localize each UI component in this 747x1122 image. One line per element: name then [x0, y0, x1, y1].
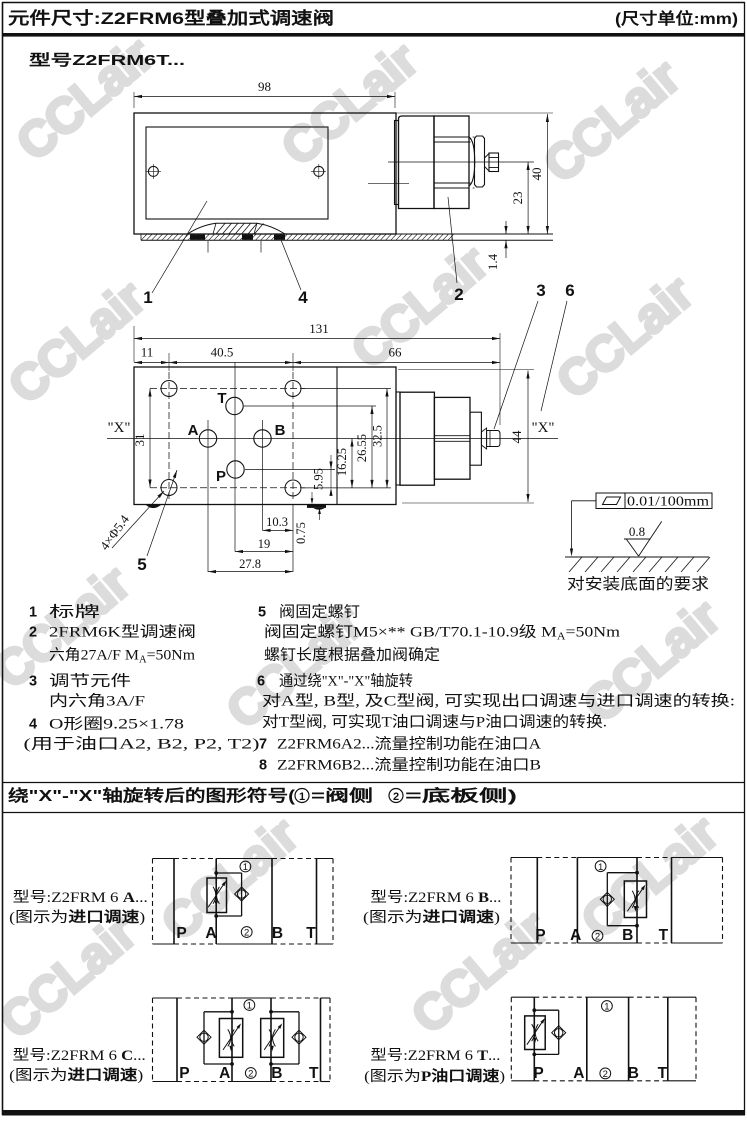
svg-text:A: A	[573, 1065, 584, 1082]
svg-text:131: 131	[309, 321, 329, 336]
svg-text:2FRM6K型调速阀: 2FRM6K型调速阀	[49, 624, 196, 641]
svg-text:7: 7	[259, 737, 267, 753]
svg-text:P: P	[533, 1065, 543, 1082]
svg-text:P: P	[216, 468, 226, 485]
svg-text:2: 2	[248, 1069, 253, 1080]
svg-text:2: 2	[244, 928, 249, 939]
svg-text:P: P	[535, 927, 545, 944]
svg-text:(用于油口A2, B2, P2, T2): (用于油口A2, B2, P2, T2)	[24, 736, 260, 753]
svg-text:98: 98	[258, 79, 271, 94]
svg-text:A: A	[570, 927, 581, 944]
svg-text:1: 1	[299, 791, 305, 803]
svg-text:40: 40	[529, 168, 544, 181]
svg-text:31: 31	[132, 434, 147, 447]
svg-text:B: B	[275, 422, 286, 439]
svg-text:40.5: 40.5	[211, 345, 234, 360]
svg-text:A: A	[188, 422, 199, 439]
svg-text:A: A	[205, 925, 216, 942]
svg-text:6: 6	[565, 281, 574, 300]
svg-text:阀固定螺钉: 阀固定螺钉	[279, 604, 360, 621]
svg-text:19: 19	[258, 537, 271, 551]
svg-text:4: 4	[29, 717, 37, 733]
svg-text:T: T	[658, 1065, 668, 1082]
svg-text:T: T	[659, 927, 669, 944]
svg-text:3: 3	[29, 674, 37, 690]
svg-text:5.95: 5.95	[312, 468, 326, 490]
svg-text:4: 4	[298, 288, 308, 307]
svg-text:A: A	[219, 1065, 230, 1082]
svg-text:0.01/100mm: 0.01/100mm	[627, 494, 710, 509]
svg-text:对安装底面的要求: 对安装底面的要求	[567, 575, 709, 593]
svg-text:32.5: 32.5	[371, 425, 385, 447]
svg-text:8: 8	[259, 758, 267, 774]
svg-text:六角27A/F MA=50Nm: 六角27A/F MA=50Nm	[49, 647, 195, 666]
svg-text:3: 3	[536, 281, 545, 300]
svg-text:内六角3A/F: 内六角3A/F	[49, 693, 145, 710]
svg-text:2: 2	[29, 625, 37, 641]
svg-text:B: B	[271, 1065, 282, 1082]
svg-text:=阀侧: =阀侧	[311, 786, 373, 805]
svg-text:=底板侧): =底板侧)	[405, 786, 517, 805]
svg-text:元件尺寸:Z2FRM6型叠加式调速阀: 元件尺寸:Z2FRM6型叠加式调速阀	[8, 8, 334, 28]
svg-text:10.3: 10.3	[266, 515, 288, 529]
svg-text:23: 23	[510, 192, 525, 205]
svg-text:P: P	[179, 1065, 189, 1082]
svg-text:0.8: 0.8	[629, 524, 645, 539]
svg-text:对A型, B型, 及C型阀, 可实现出口调速与进口调速的转换: 对A型, B型, 及C型阀, 可实现出口调速与进口调速的转换:	[262, 693, 735, 710]
svg-text:B: B	[622, 927, 633, 944]
svg-text:2: 2	[393, 791, 399, 803]
svg-text:"X": "X"	[107, 420, 130, 436]
svg-text:T: T	[309, 1065, 319, 1082]
svg-text:(图示为进口调速): (图示为进口调速)	[363, 908, 500, 926]
svg-text:16.25: 16.25	[335, 448, 349, 476]
svg-text:调节元件: 调节元件	[49, 673, 131, 690]
svg-text:66: 66	[389, 345, 403, 360]
svg-text:绕"X"-"X"轴旋转后的图形符号(: 绕"X"-"X"轴旋转后的图形符号(	[8, 786, 296, 805]
svg-text:T: T	[217, 390, 226, 407]
svg-text:0.75: 0.75	[294, 522, 308, 544]
svg-text:(图示为进口调速): (图示为进口调速)	[9, 1066, 143, 1084]
svg-text:型号:Z2FRM 6 A...: 型号:Z2FRM 6 A...	[13, 889, 148, 906]
svg-text:1: 1	[29, 605, 37, 621]
svg-text:型号:Z2FRM 6 C...: 型号:Z2FRM 6 C...	[13, 1047, 146, 1064]
svg-text:5: 5	[258, 605, 266, 621]
svg-text:对T型阀, 可实现T油口调速与P油口调速的转换.: 对T型阀, 可实现T油口调速与P油口调速的转换.	[262, 714, 607, 731]
svg-text:(尺寸单位:mm): (尺寸单位:mm)	[615, 9, 738, 28]
svg-text:T: T	[306, 925, 316, 942]
svg-text:型号Z2FRM6T...: 型号Z2FRM6T...	[29, 51, 185, 69]
svg-text:1.4: 1.4	[485, 253, 500, 270]
svg-text:1: 1	[243, 862, 248, 873]
svg-text:5: 5	[137, 555, 146, 574]
svg-text:标牌: 标牌	[49, 604, 100, 621]
svg-text:6: 6	[257, 674, 265, 690]
svg-text:型号:Z2FRM 6 B...: 型号:Z2FRM 6 B...	[370, 889, 501, 906]
svg-text:P: P	[176, 925, 186, 942]
svg-text:(图示为进口调速): (图示为进口调速)	[9, 908, 145, 926]
svg-text:阀固定螺钉M5×** GB/T70.1-10.9级 MA=5: 阀固定螺钉M5×** GB/T70.1-10.9级 MA=50Nm	[264, 624, 620, 643]
svg-text:2: 2	[603, 1069, 608, 1080]
svg-text:2: 2	[454, 285, 463, 304]
svg-text:B: B	[628, 1065, 639, 1082]
svg-text:44: 44	[509, 430, 524, 444]
svg-text:1: 1	[604, 1002, 609, 1013]
svg-text:1: 1	[247, 1001, 252, 1012]
svg-text:B: B	[272, 925, 283, 942]
svg-text:1: 1	[598, 862, 603, 873]
svg-text:11: 11	[141, 345, 154, 360]
svg-text:27.8: 27.8	[239, 557, 261, 571]
svg-text:1: 1	[143, 288, 152, 307]
svg-text:2: 2	[595, 931, 600, 942]
svg-text:Z2FRM6A2...流量控制功能在油口A: Z2FRM6A2...流量控制功能在油口A	[277, 736, 541, 753]
svg-text:"X": "X"	[531, 420, 554, 436]
svg-text:型号:Z2FRM 6 T...: 型号:Z2FRM 6 T...	[370, 1047, 500, 1064]
svg-text:26.55: 26.55	[355, 434, 369, 462]
svg-text:Z2FRM6B2...流量控制功能在油口B: Z2FRM6B2...流量控制功能在油口B	[277, 757, 541, 774]
svg-text:通过绕"X"-"X"轴旋转: 通过绕"X"-"X"轴旋转	[279, 673, 413, 690]
svg-text:(图示为P油口调速): (图示为P油口调速)	[364, 1067, 505, 1085]
svg-text:O形圈9.25×1.78: O形圈9.25×1.78	[49, 716, 184, 733]
svg-text:螺钉长度根据叠加阀确定: 螺钉长度根据叠加阀确定	[264, 647, 440, 664]
